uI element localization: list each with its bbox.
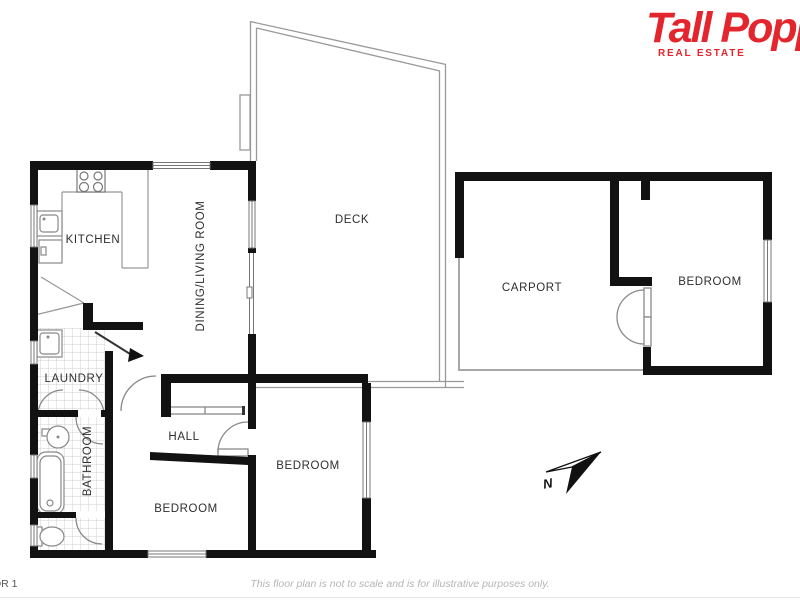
- floorplan-page: KITCHEN DINING/LIVING ROOM DECK CARPORT …: [0, 0, 800, 600]
- room-label-carport: CARPORT: [502, 282, 562, 294]
- laundry-fixtures: [37, 330, 62, 357]
- french-door-arc-top: [617, 290, 644, 317]
- room-label-bathroom: BATHROOM: [82, 426, 94, 496]
- room-label-dining-living: DINING/LIVING ROOM: [195, 201, 207, 332]
- bathtub-icon: [37, 452, 64, 514]
- floor-label: OR 1: [0, 578, 18, 590]
- room-label-laundry: LAUNDRY: [45, 373, 104, 385]
- kitchen-appliance-icon: [39, 240, 62, 263]
- brand-logo: Tall Popp REAL ESTATE: [646, 6, 800, 59]
- french-door-arc-bottom: [617, 317, 644, 344]
- bedroom-s-door-arc: [218, 422, 248, 452]
- brand-name: Tall Popp: [646, 6, 800, 50]
- tiled-floors: [36, 328, 105, 552]
- disclaimer-text: This floor plan is not to scale and is f…: [250, 578, 549, 590]
- kitchen-door-arrow: [128, 348, 144, 362]
- hall-dining-door-arc: [121, 376, 156, 411]
- room-label-hall: HALL: [168, 431, 199, 443]
- deck-outline: [240, 22, 464, 388]
- room-label-bedroom-sw: BEDROOM: [154, 503, 218, 515]
- windows: [31, 163, 771, 558]
- room-label-bedroom-s: BEDROOM: [276, 460, 340, 472]
- room-label-bedroom-ne: BEDROOM: [678, 276, 742, 288]
- french-door-leaf-bottom: [644, 317, 651, 346]
- floorplan-canvas: [0, 0, 800, 600]
- walls: [30, 161, 772, 558]
- north-arrow-icon: [546, 452, 601, 494]
- french-door-leaf-top: [644, 288, 651, 317]
- footer-divider: [0, 597, 800, 598]
- bedroom-s-door-leaf: [218, 449, 248, 456]
- room-label-deck: DECK: [335, 214, 369, 226]
- room-label-kitchen: KITCHEN: [66, 234, 121, 246]
